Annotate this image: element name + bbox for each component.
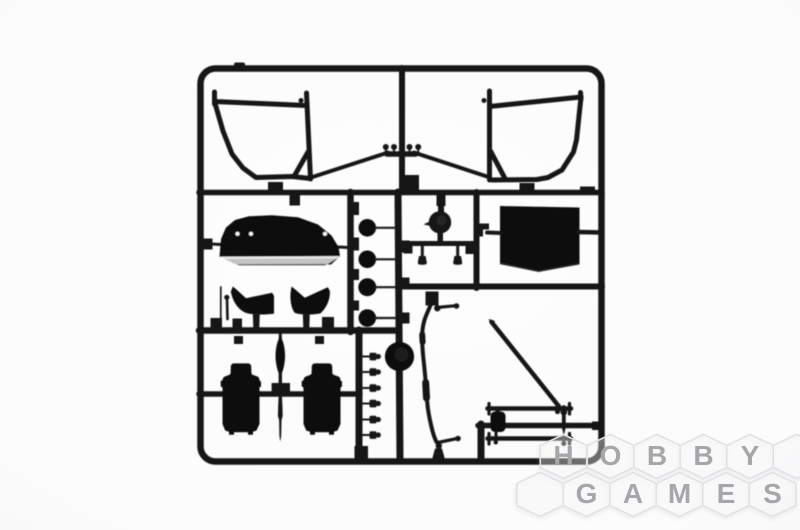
svg-text:S: S [763,478,782,509]
svg-text:A: A [623,478,643,509]
svg-text:G: G [576,478,598,509]
svg-text:E: E [717,478,736,509]
svg-text:M: M [668,478,691,509]
svg-text:O: O [600,440,622,471]
svg-text:B: B [693,440,713,471]
svg-text:B: B [647,440,667,471]
svg-text:H: H [553,440,573,471]
svg-text:Y: Y [741,440,760,471]
